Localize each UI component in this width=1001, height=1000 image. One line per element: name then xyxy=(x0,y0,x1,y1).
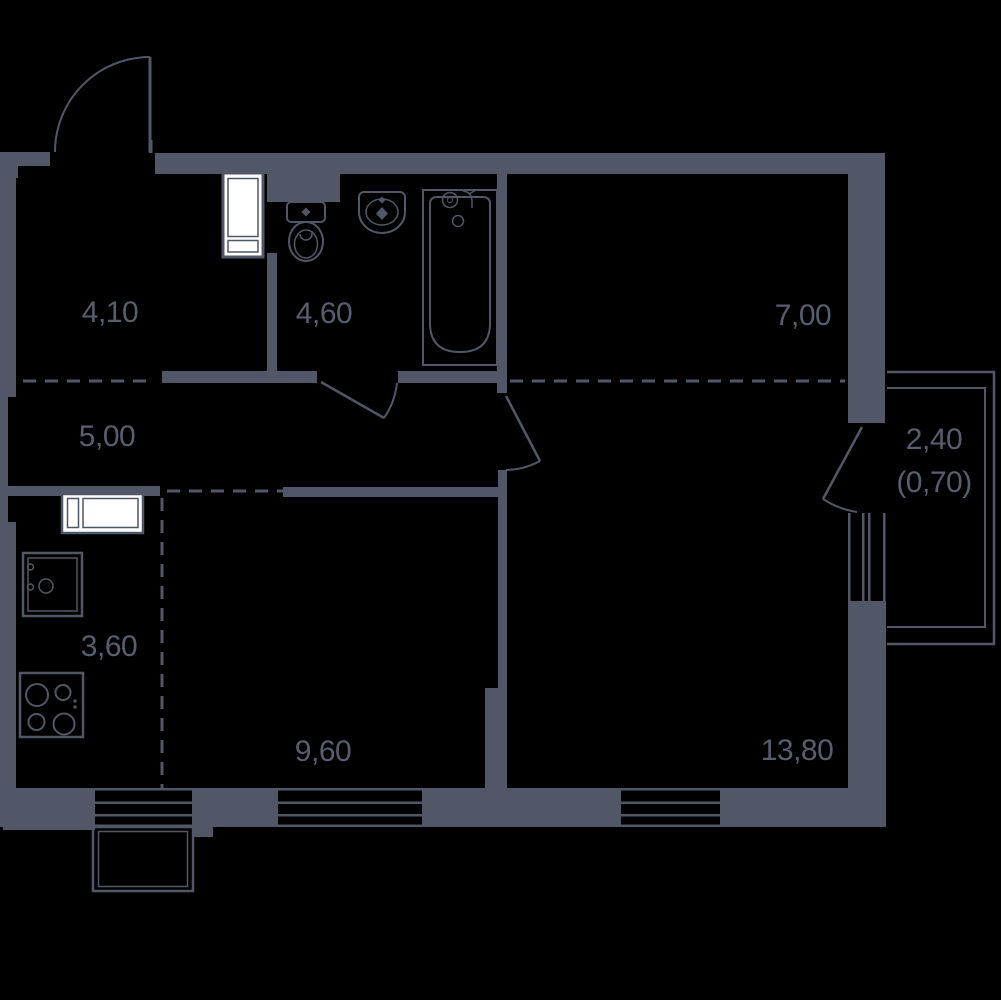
entrance-door xyxy=(55,57,153,153)
room-label-room-upper-right: 7,00 xyxy=(775,299,831,333)
living-room-door xyxy=(506,396,540,470)
bathtub-icon xyxy=(423,190,497,365)
zone-boundary-dashed-lines xyxy=(23,381,845,788)
room-label-living-room: 13,80 xyxy=(761,734,834,768)
window-balcony-door-side xyxy=(848,513,886,601)
kitchen-vent-box xyxy=(62,494,143,533)
window-living-room xyxy=(621,788,720,827)
room-label-kitchen: 3,60 xyxy=(81,630,137,664)
bathroom-sink-icon xyxy=(359,192,405,233)
room-label-bathroom: 4,60 xyxy=(296,297,352,331)
floor-plan: 4,10 4,60 7,00 5,00 2,40 (0,70) 3,60 9,6… xyxy=(0,0,1001,1000)
stove-icon xyxy=(20,673,83,737)
room-label-balcony-reduced: (0,70) xyxy=(896,466,971,500)
kitchen-sink-icon xyxy=(23,553,82,616)
floor-plan-drawing xyxy=(0,0,1001,1000)
bathroom-door xyxy=(321,382,397,418)
kitchen-window-sill-box xyxy=(93,827,193,891)
room-label-entry-hall: 4,10 xyxy=(82,296,138,330)
room-label-corridor: 5,00 xyxy=(79,420,135,454)
room-label-room-lower-left: 9,60 xyxy=(295,735,351,769)
room-label-balcony: 2,40 xyxy=(906,423,962,457)
window-kitchen xyxy=(95,788,192,827)
balcony-railing xyxy=(887,372,994,644)
toilet-icon xyxy=(287,202,325,261)
window-room-lower-left xyxy=(278,788,422,827)
washing-machine-icon xyxy=(223,173,263,257)
balcony-door xyxy=(823,427,862,512)
